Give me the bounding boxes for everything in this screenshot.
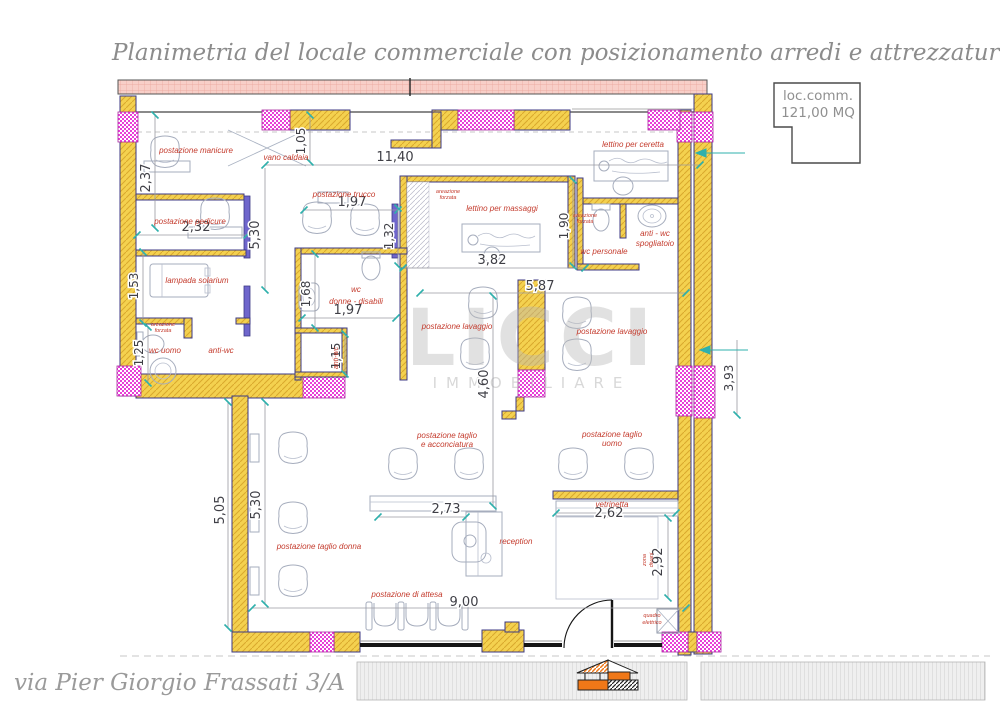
label-wc-personale: wc personale <box>580 247 628 256</box>
label-lavaggio-left: postazione lavaggio <box>421 322 493 331</box>
label-trucco: postazione trucco <box>312 190 376 199</box>
label-attesa: postazione di attesa <box>370 590 443 599</box>
label-reception: reception <box>500 537 533 546</box>
dim-1-25: 1,25 <box>132 340 146 367</box>
label-vetrinetta: vetrinetta <box>596 500 629 509</box>
label-anti-wc-left: anti-wc <box>208 346 233 355</box>
label-taglio-acc-1: postazione taglio <box>416 431 478 440</box>
label-massaggi: lettino per massaggi <box>466 204 538 213</box>
label-spogliatoio-2: spogliatoio <box>636 239 675 248</box>
page-title: Planimetria del locale commerciale con p… <box>111 40 1000 66</box>
dim-2-37: 2,37 <box>139 164 154 193</box>
dim-3-93: 3,93 <box>722 365 736 392</box>
dim-1-05: 1,05 <box>294 128 308 155</box>
ceretta-bed <box>594 151 668 195</box>
label-anti-wc-mid: anti-wc <box>333 346 340 369</box>
dim-2-73: 2,73 <box>432 502 461 517</box>
watermark: LICCI IMMOBILIARE <box>406 294 658 392</box>
sidewalk-band <box>357 662 985 700</box>
address-label: via Pier Giorgio Frassati 3/A <box>14 670 345 696</box>
plan-canvas: Planimetria del locale commerciale con p… <box>0 0 1000 707</box>
info-box-line1: loc.comm. <box>783 88 853 104</box>
label-taglio-uomo-1: postazione taglio <box>581 430 643 439</box>
dim-5-87: 5,87 <box>526 279 555 294</box>
label-wc-uomo: wc uomo <box>149 346 182 355</box>
label-areazione-c2: forzata <box>577 219 594 225</box>
label-zona-divani-2: divani <box>649 552 655 567</box>
dim-4-60: 4,60 <box>477 370 492 399</box>
label-wc-donne-2: donne - disabili <box>329 297 383 306</box>
dim-1-68: 1,68 <box>299 281 313 308</box>
entrance-door <box>564 600 612 648</box>
dim-11-40: 11,40 <box>376 150 413 165</box>
dim-5-30-b: 5,30 <box>249 491 264 520</box>
label-taglio-uomo-2: uomo <box>602 439 623 448</box>
dim-5-05: 5,05 <box>213 496 228 525</box>
label-quadro-1: quadro <box>643 613 660 619</box>
watermark-name: LICCI <box>406 294 658 384</box>
info-box: loc.comm. 121,00 MQ <box>774 83 860 163</box>
label-areazione-a2: forzata <box>155 328 172 334</box>
dim-1-90: 1,90 <box>557 213 571 240</box>
floor-plan-sheet: Planimetria del locale commerciale con p… <box>0 0 1000 707</box>
dim-1-32: 1,32 <box>382 223 396 250</box>
label-spogliatoio-1: anti - wc <box>640 229 670 238</box>
top-hatched-band <box>118 78 707 96</box>
label-lavaggio-right: postazione lavaggio <box>576 327 648 336</box>
info-box-line2: 121,00 MQ <box>781 105 855 121</box>
label-solarium: lampada solarium <box>165 276 228 285</box>
watermark-subtitle: IMMOBILIARE <box>433 374 632 392</box>
label-taglio-acc-2: e acconciatura <box>421 440 474 449</box>
label-wc-donne-1: wc <box>351 285 361 294</box>
dim-3-82: 3,82 <box>478 253 507 268</box>
label-taglio-donna: postazione taglio donna <box>276 542 362 551</box>
dim-1-53: 1,53 <box>127 273 141 300</box>
label-zona-divani-1: zona <box>642 554 648 567</box>
dim-9-00: 9,00 <box>450 595 479 610</box>
label-vano-caldaia: vano caldaia <box>264 153 309 162</box>
label-manicure: postazione manicure <box>158 146 233 155</box>
label-areazione-b2: forzata <box>440 195 457 201</box>
dim-5-30-a: 5,30 <box>248 221 263 250</box>
label-ceretta: lettino per ceretta <box>602 140 664 149</box>
label-quadro-2: elettrico <box>642 620 661 626</box>
label-pedicure: postazione pedicure <box>153 217 226 226</box>
